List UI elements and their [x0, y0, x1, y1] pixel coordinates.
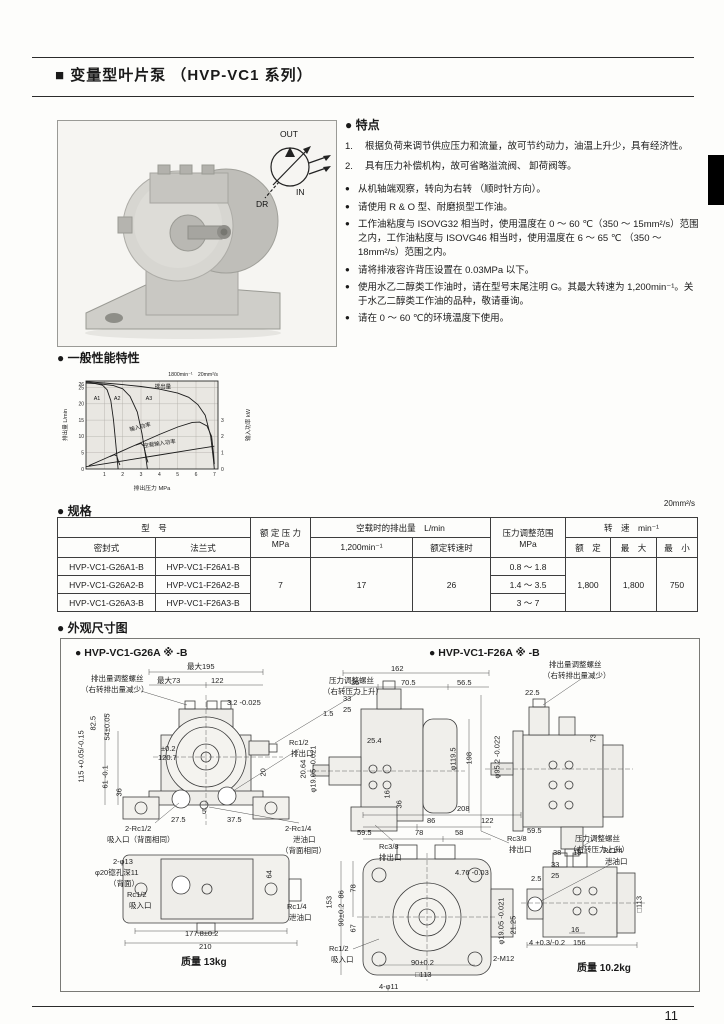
symbol-dr-label: DR — [256, 199, 268, 209]
col-flow2: 额定转速时 — [413, 538, 491, 558]
dim-label: Rc1/4 — [603, 847, 623, 855]
dim-label: Rc1/2 — [289, 739, 309, 747]
f26a-drawing-title: ● HVP-VC1-F26A ※ -B — [429, 647, 540, 659]
dim-label: 35 — [351, 679, 359, 687]
dim-label: （右转压力上升） — [323, 688, 383, 696]
f26a-mass: 质量 10.2kg — [577, 959, 631, 974]
dim-label: 21.25 — [510, 916, 518, 935]
svg-text:15: 15 — [78, 418, 84, 424]
dim-label: 56.5 — [457, 679, 472, 687]
feature-number: 2. — [345, 160, 365, 175]
dim-label: 73 — [590, 734, 598, 742]
dim-label: 153 — [326, 896, 334, 909]
dim-label: 18 — [573, 849, 581, 857]
dim-label: 4 +0.3/-0.2 — [529, 939, 565, 947]
dim-label: 33 — [343, 695, 351, 703]
svg-text:5: 5 — [81, 451, 84, 457]
dim-label: φ19.05 -0.021 — [310, 746, 318, 793]
svg-text:1: 1 — [103, 472, 106, 478]
dim-label: 排出口 — [509, 846, 532, 854]
dim-label: 61 -0.1 — [102, 765, 110, 788]
dim-label: 2.5 — [531, 875, 541, 883]
dim-label: 64 — [266, 870, 274, 878]
svg-text:5: 5 — [176, 472, 179, 478]
svg-text:排出量 L/min: 排出量 L/min — [61, 409, 69, 441]
bullet-icon: ● — [345, 218, 350, 230]
dim-label: 2-Rc1/4 — [285, 825, 311, 833]
dim-label: 38 — [553, 849, 561, 857]
g26a-front-view — [123, 695, 289, 825]
feature-bullet: ●请将排液容许背压设置在 0.03MPa 以下。 — [345, 264, 701, 278]
col-min: 最 小 — [657, 538, 698, 558]
dim-label: 67 — [350, 924, 358, 932]
dim-label: φ19.05 -0.021 — [498, 898, 506, 945]
dim-label: 吸入口（背面相同） — [107, 836, 175, 844]
dim-label: 25 — [551, 872, 559, 880]
dim-label: 82.5 — [90, 716, 98, 731]
svg-text:20: 20 — [78, 402, 84, 408]
dim-label: 115 +0.05/-0.15 — [78, 730, 86, 782]
specs-table: 型 号 额 定 压 力MPa 空载时的排出量 L/min 压力调整范围MPa 转… — [57, 517, 698, 612]
dim-label: 36 — [116, 788, 124, 796]
bullet-icon: ● — [345, 201, 350, 213]
f26a-side-view-top — [485, 699, 633, 856]
header-rule-bottom — [32, 96, 694, 97]
page-number: 11 — [665, 1008, 679, 1023]
performance-heading: ● 一般性能特性 — [57, 349, 140, 366]
dim-label: 36 — [396, 800, 404, 808]
dim-label: 208 — [457, 805, 470, 813]
dim-label: 吸入口 — [129, 902, 152, 910]
dim-label: 2-M12 — [493, 955, 514, 963]
svg-text:4: 4 — [158, 472, 161, 478]
dim-label: 吸入口 — [331, 956, 354, 964]
catalog-page: ■ 变量型叶片泵 （HVP-VC1 系列） — [0, 0, 724, 1024]
col-rated: 额 定 — [566, 538, 611, 558]
col-speed: 转 速 min⁻¹ — [566, 518, 698, 538]
features-section: ● 特点 1. 根据负荷来调节供应压力和流量，故可节约动力，油温上升少，具有经济… — [345, 116, 701, 330]
bullet-icon: ● — [345, 312, 350, 324]
svg-text:2: 2 — [121, 472, 124, 478]
g26a-top-view — [123, 855, 301, 933]
dim-label: 59.5 — [527, 827, 542, 835]
svg-text:26: 26 — [78, 382, 84, 388]
edge-index-tab — [708, 155, 724, 205]
svg-text:0: 0 — [221, 467, 224, 473]
symbol-in-label: IN — [296, 187, 305, 197]
feature-text: 具有压力补偿机构，故可省略溢流阀、 卸荷阀等。 — [365, 160, 577, 175]
dim-label: 25 — [343, 706, 351, 714]
col-range: 压力调整范围MPa — [491, 518, 566, 558]
dim-label: 90±0.2 — [338, 904, 346, 927]
col-pressure: 额 定 压 力MPa — [251, 518, 311, 558]
bullet-icon: ● — [345, 183, 350, 195]
dim-label: φ20锪孔深11 — [95, 869, 139, 877]
dim-label: 泄油口 — [289, 914, 312, 922]
product-photo: OUT IN DR — [57, 120, 337, 347]
dim-label: 90±0.2 — [411, 959, 434, 967]
svg-text:2: 2 — [221, 434, 224, 440]
dim-label: 最大195 — [187, 663, 215, 671]
g26a-side-view — [307, 681, 465, 831]
dim-label: 33 — [551, 861, 559, 869]
dim-label: 58 — [455, 829, 463, 837]
dim-label: 198 — [466, 752, 474, 765]
page-title: ■ 变量型叶片泵 （HVP-VC1 系列） — [55, 64, 313, 85]
dim-label: 210 — [199, 943, 212, 951]
dim-label: 4.76 -0.03 — [455, 869, 489, 877]
dim-label: 122 — [211, 677, 224, 685]
dim-label: 2-φ13 — [113, 858, 133, 866]
dim-label: 120.7 — [158, 754, 177, 762]
g26a-mass: 质量 13kg — [181, 953, 227, 968]
dim-label: （背面） — [109, 880, 139, 888]
feature-text: 根据负荷来调节供应压力和流量，故可节约动力，油温上升少，具有经济性。 — [365, 140, 688, 155]
dim-label: 排出口 — [379, 854, 402, 862]
dim-label: 3.2 -0.025 — [227, 699, 261, 707]
feature-item-1: 1. 根据负荷来调节供应压力和流量，故可节约动力，油温上升少，具有经济性。 — [345, 140, 701, 155]
svg-text:7: 7 — [213, 472, 216, 478]
feature-bullet: ●请使用 R & O 型、耐磨损型工作油。 — [345, 201, 701, 215]
dim-label: 5 — [202, 808, 206, 816]
bullet-icon: ● — [345, 264, 350, 276]
dim-label: 25.4 — [367, 737, 382, 745]
svg-text:10: 10 — [78, 434, 84, 440]
dim-label: Rc1/2 — [127, 891, 147, 899]
dim-label: 122 — [481, 817, 494, 825]
dim-label: 4-φ11 — [379, 983, 398, 991]
feature-bullet: ●使用水乙二醇类工作油时，请在型号末尾注明 G。其最大转速为 1,200min⁻… — [345, 281, 701, 310]
svg-text:A1: A1 — [94, 396, 101, 402]
dim-label: 22.5 — [525, 689, 540, 697]
dim-label: 86 — [427, 817, 435, 825]
dim-label: （背面相同） — [281, 847, 326, 855]
dim-label: Rc3/8 — [379, 843, 399, 851]
dim-label: 156 — [573, 939, 586, 947]
svg-text:A2: A2 — [114, 396, 121, 402]
svg-text:A3: A3 — [146, 396, 153, 402]
g26a-drawing-title: ● HVP-VC1-G26A ※ -B — [75, 647, 187, 659]
dim-label: 2-Rc1/2 — [125, 825, 151, 833]
dim-label: 162 — [391, 665, 404, 673]
dim-label: 20 — [260, 768, 268, 776]
dim-label: 37.5 — [227, 816, 242, 824]
svg-text:排出量: 排出量 — [155, 383, 172, 391]
dim-label: φ95.2 -0.022 — [494, 736, 502, 779]
feature-bullet: ●请在 0 ～ 60 ℃的环境温度下使用。 — [345, 312, 701, 326]
col-max: 最 大 — [611, 538, 657, 558]
dim-label: 16 — [571, 926, 579, 934]
header-rule-top — [32, 57, 694, 58]
performance-chart-svg: 12345670510152025260123排出量A1A2A3输入功率空载输入… — [60, 366, 255, 496]
feature-item-2: 2. 具有压力补偿机构，故可省略溢流阀、 卸荷阀等。 — [345, 160, 701, 175]
dim-label: 78 — [350, 884, 358, 892]
svg-text:1800min⁻¹ 20mm²/s: 1800min⁻¹ 20mm²/s — [168, 372, 218, 378]
dim-label: 16 — [384, 790, 392, 798]
dim-label: Rc1/4 — [287, 903, 307, 911]
svg-text:3: 3 — [221, 418, 224, 424]
footer-rule — [32, 1006, 694, 1007]
dim-label: 70.5 — [401, 679, 416, 687]
col-flow1: 1,200min⁻¹ — [311, 538, 413, 558]
specs-viscosity-note: 20mm²/s — [664, 499, 695, 508]
dim-label: □113 — [415, 971, 432, 979]
col-flange: 法兰式 — [156, 538, 251, 558]
dim-label: （右转排出量减少） — [543, 672, 611, 680]
symbol-out-label: OUT — [280, 129, 298, 139]
dim-label: 177.8±0.2 — [185, 930, 218, 938]
dim-label: Rc1/2 — [329, 945, 349, 953]
dim-label: □113 — [636, 896, 644, 913]
dim-label: 54±0.05 — [104, 713, 112, 740]
dimensions-heading: ● 外观尺寸图 — [57, 619, 128, 636]
feature-bullet-list: ●从机轴端观察，转向为右转 （顺时针方向）。 ●请使用 R & O 型、耐磨损型… — [345, 183, 701, 326]
dim-label: （右转排出量减少） — [81, 686, 149, 694]
table-row: HVP-VC1-G26A1-B HVP-VC1-F26A1-B 7 17 26 … — [58, 558, 698, 576]
col-model: 型 号 — [58, 518, 251, 538]
col-flow: 空载时的排出量 L/min — [311, 518, 491, 538]
svg-text:1: 1 — [221, 451, 224, 457]
col-seal: 密封式 — [58, 538, 156, 558]
dim-label: 泄油口 — [605, 858, 628, 866]
svg-text:输入功率 kW: 输入功率 kW — [244, 408, 252, 441]
dimension-drawings: ● HVP-VC1-G26A ※ -B ● HVP-VC1-F26A ※ -B … — [60, 638, 700, 992]
dim-label: 1.5 — [323, 710, 333, 718]
dim-label: 27.5 — [171, 816, 186, 824]
dim-label: φ119.5 — [450, 747, 458, 770]
dim-label: 排出量调整螺丝 — [91, 675, 144, 683]
pump-illustration: OUT IN DR — [58, 121, 336, 346]
dim-label: ±0.2 — [161, 745, 176, 753]
feature-bullet: ●工作油粘度与 ISOVG32 相当时，使用温度在 0 ～ 60 ℃（350 ～… — [345, 218, 701, 261]
features-heading: ● 特点 — [345, 116, 701, 133]
dim-label: Rc3/8 — [507, 835, 527, 843]
bullet-icon: ● — [345, 281, 350, 293]
dim-label: 压力调整螺丝 — [575, 835, 620, 843]
performance-chart: 12345670510152025260123排出量A1A2A3输入功率空载输入… — [60, 366, 255, 496]
dim-label: 78 — [415, 829, 423, 837]
svg-text:3: 3 — [140, 472, 143, 478]
feature-number: 1. — [345, 140, 365, 155]
f26a-front-view — [357, 845, 513, 981]
feature-bullet: ●从机轴端观察，转向为右转 （顺时针方向）。 — [345, 183, 701, 197]
dim-label: 泄油口 — [293, 836, 316, 844]
svg-text:排出压力 MPa: 排出压力 MPa — [134, 484, 171, 492]
dim-label: 59.5 — [357, 829, 372, 837]
svg-text:6: 6 — [195, 472, 198, 478]
dim-label: 86 — [338, 890, 346, 898]
dim-label: 20.64 — [300, 760, 308, 779]
svg-text:0: 0 — [81, 467, 84, 473]
dim-label: 排出量调整螺丝 — [549, 661, 602, 669]
dim-label: 最大73 — [157, 677, 180, 685]
